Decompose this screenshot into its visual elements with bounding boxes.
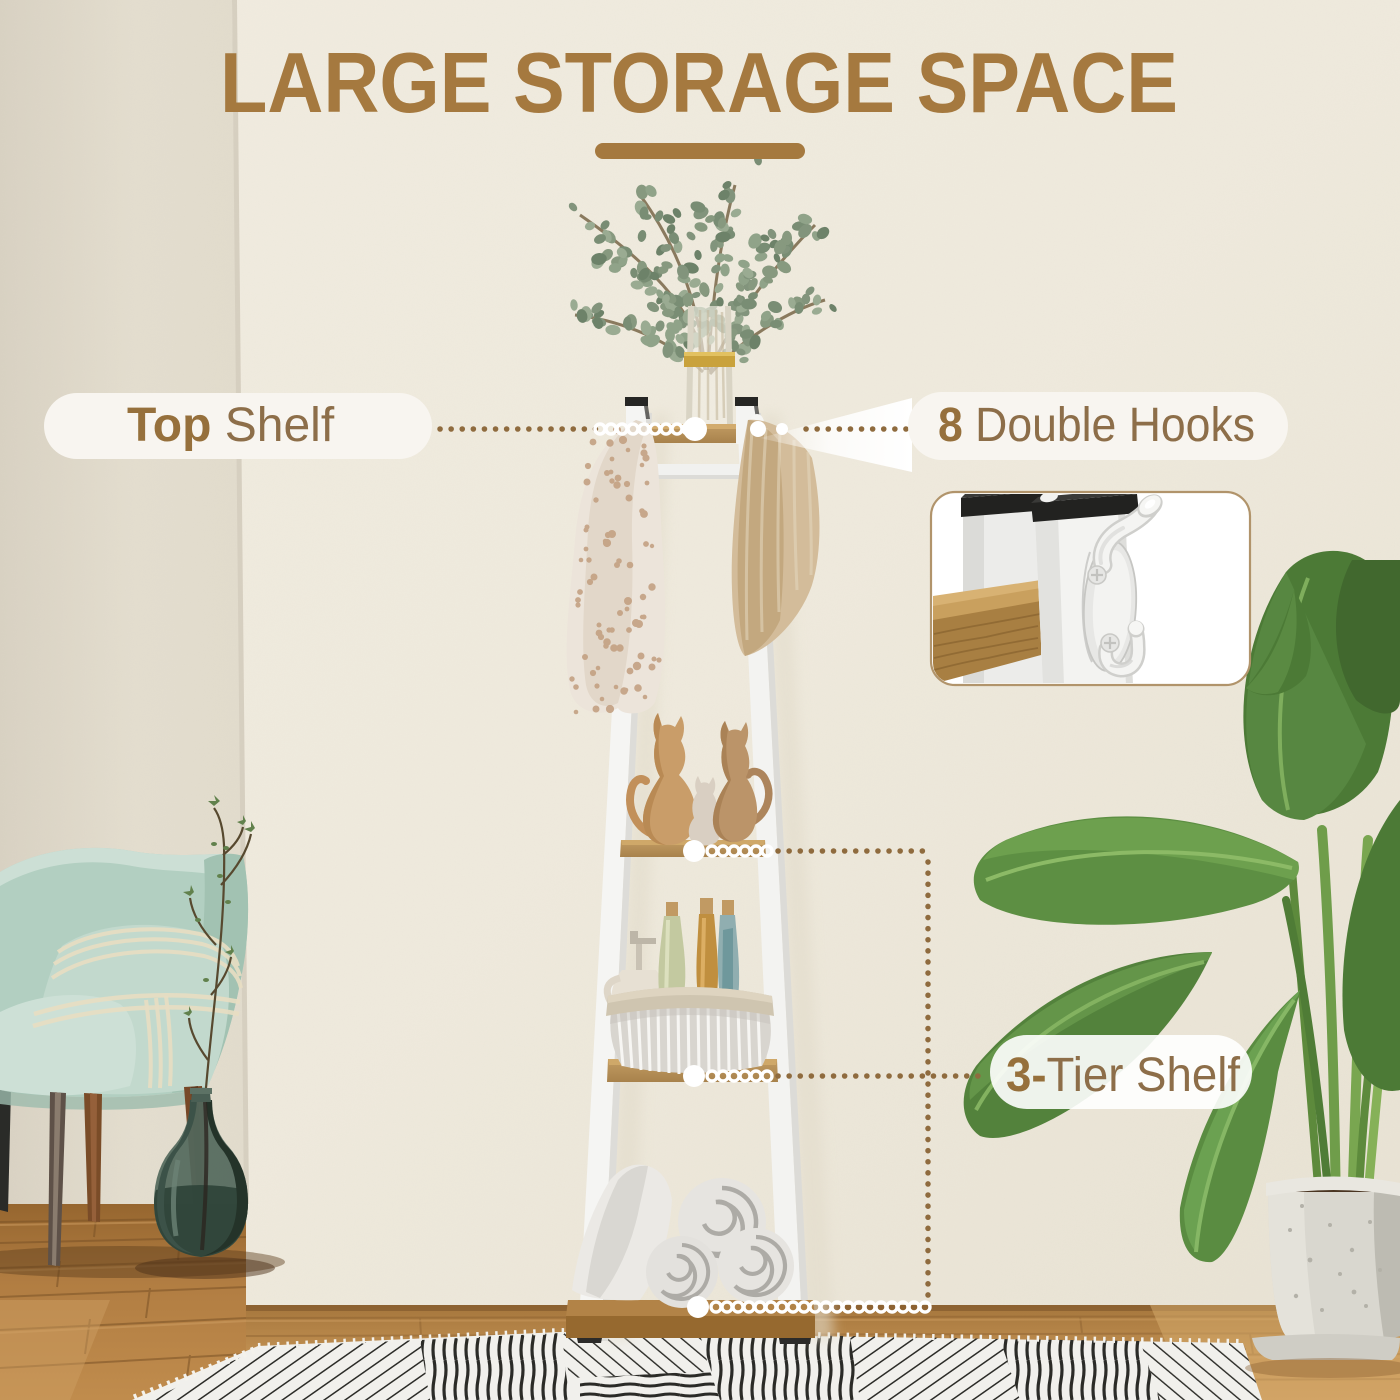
svg-text:Top Shelf: Top Shelf bbox=[127, 399, 335, 452]
svg-text:8 Double Hooks: 8 Double Hooks bbox=[938, 399, 1255, 452]
svg-text:LARGE STORAGE SPACE: LARGE STORAGE SPACE bbox=[220, 36, 1178, 131]
svg-text:3-Tier Shelf: 3-Tier Shelf bbox=[1006, 1049, 1241, 1102]
